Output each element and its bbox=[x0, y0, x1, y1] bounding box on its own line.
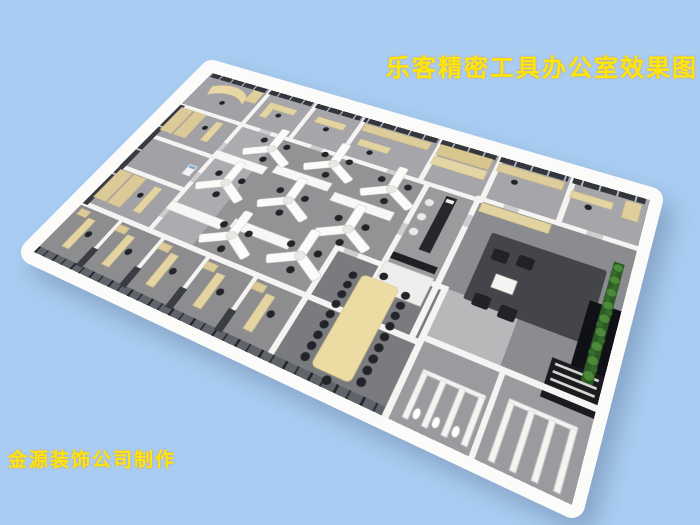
poster-title: 乐客精密工具办公室效果图 bbox=[386, 48, 698, 83]
credit-caption: 金源装饰公司制作 bbox=[8, 445, 176, 472]
poster: 乐客精密工具办公室效果图 金源装饰公司制作 bbox=[0, 0, 700, 525]
